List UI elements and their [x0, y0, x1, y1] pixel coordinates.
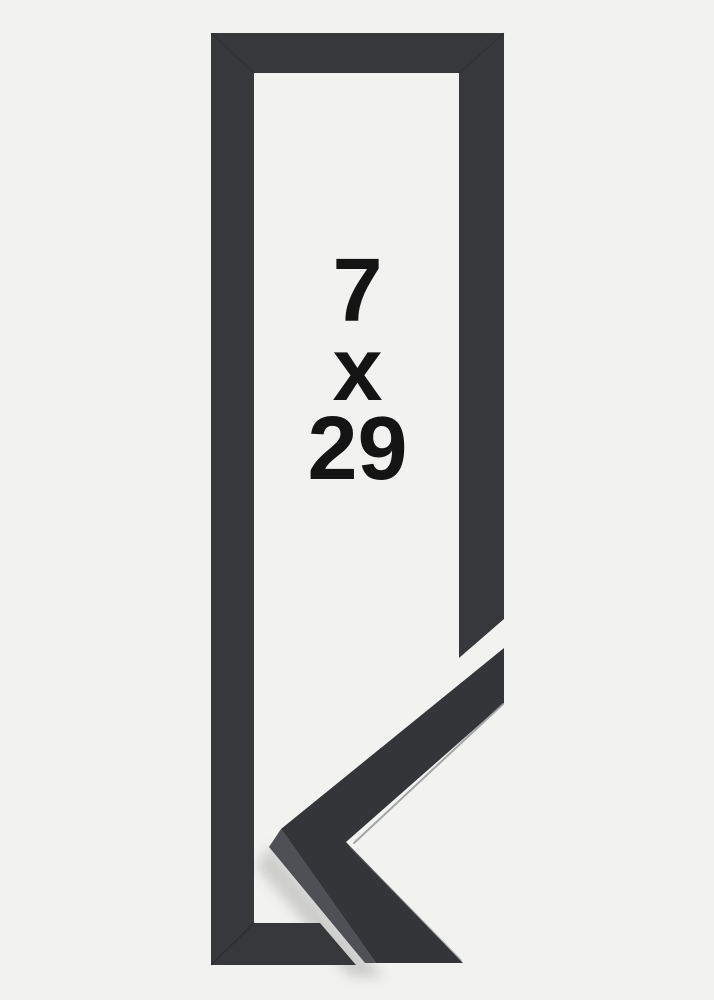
product-image: 7 x 29 — [0, 0, 714, 1000]
backdrop — [0, 0, 714, 1000]
size-label: 7 x 29 — [254, 252, 461, 489]
size-height-value: 29 — [254, 410, 461, 489]
frame-illustration — [0, 0, 714, 1000]
